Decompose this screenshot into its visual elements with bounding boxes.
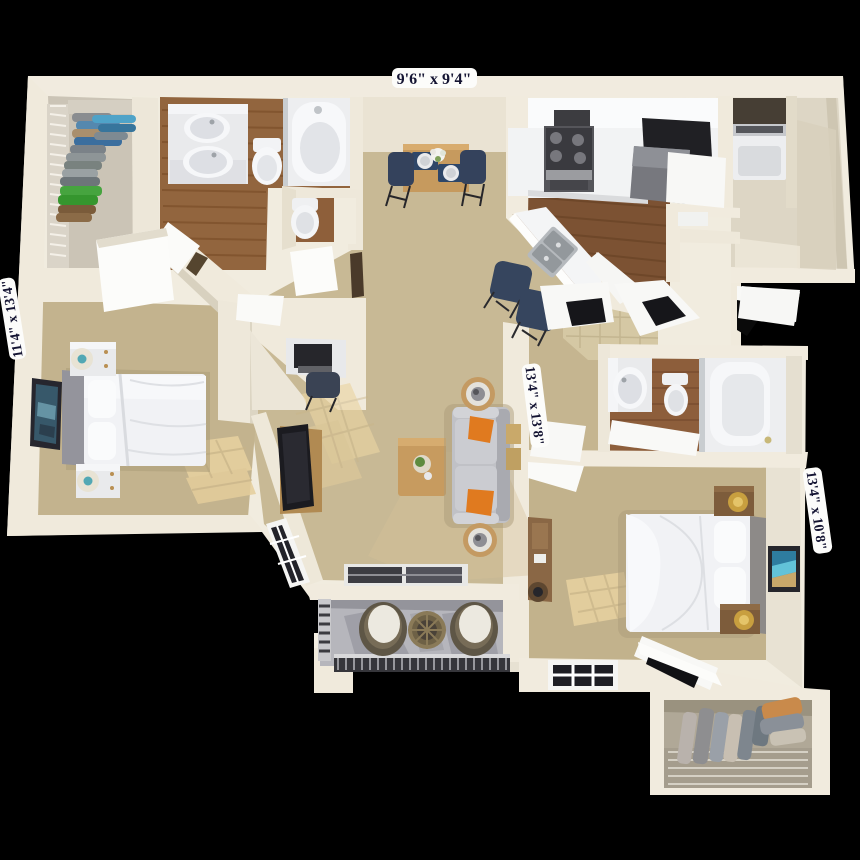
svg-text:9'6" x 9'4": 9'6" x 9'4" <box>397 71 472 88</box>
